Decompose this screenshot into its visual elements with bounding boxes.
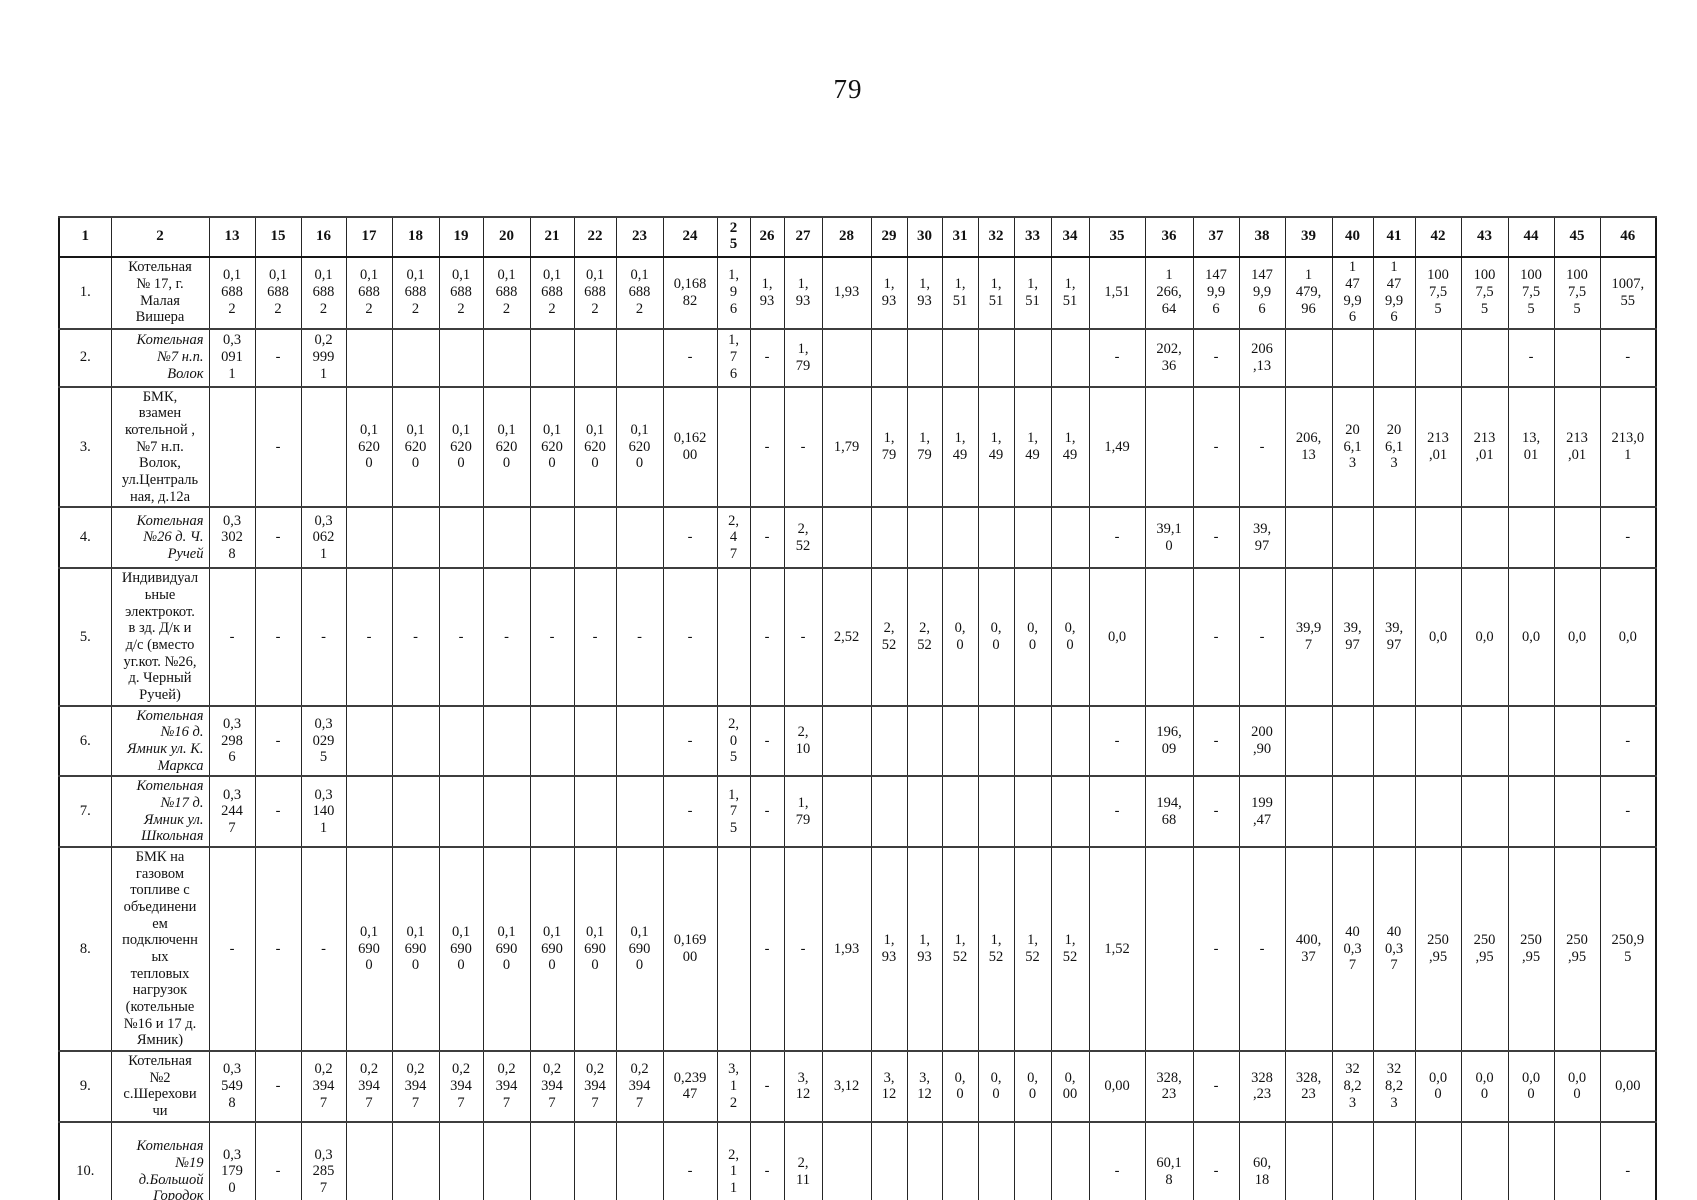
table-cell: - [750, 1122, 784, 1200]
table-cell: - [1193, 776, 1239, 847]
table-cell [942, 706, 978, 777]
row-number: 7. [59, 776, 111, 847]
table-cell: 0,00 [1089, 1051, 1145, 1122]
table-cell: - [784, 847, 822, 1051]
table-cell: 39, 97 [1373, 568, 1415, 705]
table-cell: 0,3 062 1 [301, 507, 346, 568]
table-cell: 250 ,95 [1461, 847, 1508, 1051]
table-cell: 0,2 394 7 [346, 1051, 392, 1122]
table-cell: 1, 52 [1014, 847, 1051, 1051]
table-cell: 13, 01 [1508, 387, 1554, 508]
table-cell: - [301, 847, 346, 1051]
table-cell: 0,2 394 7 [483, 1051, 530, 1122]
table-cell: 206, 13 [1285, 387, 1332, 508]
table-cell: 0,3 091 1 [209, 329, 255, 387]
table-cell: 0,1 688 2 [301, 257, 346, 329]
table-cell: 39,9 7 [1285, 568, 1332, 705]
table-cell [978, 329, 1014, 387]
table-cell: 1, 51 [1051, 257, 1089, 329]
table-cell [978, 706, 1014, 777]
column-header: 40 [1332, 217, 1373, 257]
table-cell: 2, 0 5 [717, 706, 750, 777]
table-cell: 250 ,95 [1415, 847, 1461, 1051]
column-header: 29 [871, 217, 907, 257]
table-cell: 0,2 394 7 [616, 1051, 663, 1122]
table-cell [392, 329, 439, 387]
table-cell: 3, 12 [907, 1051, 942, 1122]
table-cell: 1, 93 [907, 847, 942, 1051]
table-cell: - [1193, 847, 1239, 1051]
table-cell [1554, 329, 1600, 387]
table-cell: - [255, 329, 301, 387]
table-cell [616, 1122, 663, 1200]
table-cell: - [1600, 507, 1656, 568]
table-cell: - [255, 387, 301, 508]
table-cell: 1, 79 [784, 329, 822, 387]
boiler-name: Котельная №2 с.Шерехови чи [111, 1051, 209, 1122]
table-cell: - [1239, 568, 1285, 705]
table-cell [1461, 776, 1508, 847]
table-cell: 0,3 302 8 [209, 507, 255, 568]
table-cell: 3, 12 [784, 1051, 822, 1122]
table-cell: 1, 49 [1014, 387, 1051, 508]
table-cell [942, 507, 978, 568]
table-cell: 0,1 688 2 [392, 257, 439, 329]
table-cell: 20 6,1 3 [1332, 387, 1373, 508]
table-cell [1332, 706, 1373, 777]
table-cell [574, 706, 616, 777]
table-cell: 1,52 [1089, 847, 1145, 1051]
table-cell: 328 ,23 [1239, 1051, 1285, 1122]
table-cell: - [750, 387, 784, 508]
table-cell: 1 479, 96 [1285, 257, 1332, 329]
table-cell: 0,1 620 0 [530, 387, 574, 508]
boiler-name: БМК на газовом топливе с объединени ем п… [111, 847, 209, 1051]
boiler-name: Котельная №17 д. Ямник ул. Школьная [111, 776, 209, 847]
table-cell: 1, 79 [907, 387, 942, 508]
table-cell [1051, 1122, 1089, 1200]
table-cell [616, 507, 663, 568]
table-cell [483, 329, 530, 387]
table-cell: 0, 0 [1014, 1051, 1051, 1122]
table-cell: - [255, 706, 301, 777]
table-cell: 0,0 [1461, 568, 1508, 705]
table-row: 6.Котельная №16 д. Ямник ул. К. Маркса0,… [59, 706, 1656, 777]
table-cell: 0,3 179 0 [209, 1122, 255, 1200]
table-cell: 0,1 688 2 [346, 257, 392, 329]
table-cell [530, 776, 574, 847]
table-cell: 213 ,01 [1415, 387, 1461, 508]
table-cell: 60, 18 [1239, 1122, 1285, 1200]
table-cell [346, 329, 392, 387]
table-cell: 0, 0 [942, 568, 978, 705]
table-cell: - [1600, 329, 1656, 387]
table-cell [392, 507, 439, 568]
table-cell [1373, 776, 1415, 847]
table-cell [871, 776, 907, 847]
table-cell: - [784, 387, 822, 508]
table-cell: 0,0 0 [1415, 1051, 1461, 1122]
table-cell [907, 1122, 942, 1200]
table-cell: 100 7,5 5 [1461, 257, 1508, 329]
table-cell [1332, 507, 1373, 568]
table-cell: 0, 0 [942, 1051, 978, 1122]
table-cell: 2, 10 [784, 706, 822, 777]
column-header: 1 [59, 217, 111, 257]
table-cell: 0,1 688 2 [574, 257, 616, 329]
table-cell [346, 706, 392, 777]
table-cell [942, 329, 978, 387]
table-cell: 0,3 244 7 [209, 776, 255, 847]
table-cell [616, 329, 663, 387]
column-header: 20 [483, 217, 530, 257]
table-cell: 2, 11 [784, 1122, 822, 1200]
table-cell: 0,1 690 0 [346, 847, 392, 1051]
table-cell [717, 847, 750, 1051]
table-cell: - [1089, 706, 1145, 777]
table-cell: 1, 49 [942, 387, 978, 508]
table-cell: 1, 7 6 [717, 329, 750, 387]
table-cell [346, 507, 392, 568]
table-cell: 0, 0 [1051, 568, 1089, 705]
table-cell [439, 507, 483, 568]
table-cell [1554, 776, 1600, 847]
table-cell: 40 0,3 7 [1373, 847, 1415, 1051]
table-cell: 0,1 690 0 [392, 847, 439, 1051]
table-cell: 2, 52 [871, 568, 907, 705]
table-cell: - [784, 568, 822, 705]
table-cell: 1007, 55 [1600, 257, 1656, 329]
table-cell: 0,2 999 1 [301, 329, 346, 387]
table-cell: - [663, 706, 717, 777]
table-cell [1461, 507, 1508, 568]
table-cell: 0,168 82 [663, 257, 717, 329]
table-cell: - [750, 847, 784, 1051]
column-header: 42 [1415, 217, 1461, 257]
table-cell [209, 387, 255, 508]
table-cell: 147 9,9 6 [1239, 257, 1285, 329]
column-header: 28 [822, 217, 871, 257]
table-cell: 0,2 394 7 [574, 1051, 616, 1122]
table-cell [483, 1122, 530, 1200]
table-cell [907, 706, 942, 777]
table-cell [1373, 706, 1415, 777]
boiler-name: Котельная №19 д.Большой Городок [111, 1122, 209, 1200]
page-number: 79 [788, 74, 908, 105]
column-header: 35 [1089, 217, 1145, 257]
table-cell: - [750, 776, 784, 847]
table-cell: - [1600, 1122, 1656, 1200]
table-cell: - [1193, 1122, 1239, 1200]
table-cell: 39, 97 [1332, 568, 1373, 705]
table-cell: 0,1 620 0 [439, 387, 483, 508]
table-cell [483, 706, 530, 777]
table-cell [1461, 329, 1508, 387]
table-cell: 0,0 [1508, 568, 1554, 705]
table-cell [822, 1122, 871, 1200]
table-cell [1508, 1122, 1554, 1200]
table-cell: 1, 9 6 [717, 257, 750, 329]
table-cell: 0,2 394 7 [301, 1051, 346, 1122]
table-cell [1014, 329, 1051, 387]
column-header: 13 [209, 217, 255, 257]
column-header: 45 [1554, 217, 1600, 257]
row-number: 4. [59, 507, 111, 568]
row-number: 8. [59, 847, 111, 1051]
table-cell: 0,162 00 [663, 387, 717, 508]
table-cell: - [1193, 568, 1239, 705]
table-cell [301, 387, 346, 508]
table-cell: 20 6,1 3 [1373, 387, 1415, 508]
table-cell: - [1089, 1122, 1145, 1200]
table-cell: - [663, 329, 717, 387]
table-cell [616, 776, 663, 847]
column-header: 2 [111, 217, 209, 257]
table-cell [1285, 1122, 1332, 1200]
table-cell: 0,1 620 0 [483, 387, 530, 508]
table-cell: 0,3 140 1 [301, 776, 346, 847]
boiler-name: Котельная №7 н.п. Волок [111, 329, 209, 387]
table-cell [907, 776, 942, 847]
table-cell: - [616, 568, 663, 705]
table-cell [439, 1122, 483, 1200]
table-cell: 1,51 [1089, 257, 1145, 329]
column-header: 24 [663, 217, 717, 257]
table-cell: - [663, 568, 717, 705]
table-cell: 39,1 0 [1145, 507, 1193, 568]
table-cell [907, 507, 942, 568]
table-cell: 213 ,01 [1461, 387, 1508, 508]
table-cell [1285, 329, 1332, 387]
table-cell [942, 1122, 978, 1200]
table-cell: 0,1 690 0 [574, 847, 616, 1051]
row-number: 3. [59, 387, 111, 508]
table-cell [346, 776, 392, 847]
table-cell: 1,93 [822, 847, 871, 1051]
table-cell [978, 776, 1014, 847]
table-cell: - [750, 329, 784, 387]
table-cell: - [750, 507, 784, 568]
table-cell: 213,0 1 [1600, 387, 1656, 508]
table-cell [871, 1122, 907, 1200]
table-cell: 0,1 688 2 [616, 257, 663, 329]
table-cell: - [1193, 507, 1239, 568]
table-cell: - [663, 776, 717, 847]
column-header: 22 [574, 217, 616, 257]
table-cell [439, 706, 483, 777]
table-cell: - [209, 568, 255, 705]
table-cell [574, 776, 616, 847]
table-cell: - [1508, 329, 1554, 387]
column-header: 18 [392, 217, 439, 257]
row-number: 2. [59, 329, 111, 387]
table-cell: 1, 52 [1051, 847, 1089, 1051]
table-cell [717, 387, 750, 508]
table-cell [1415, 507, 1461, 568]
table-cell: 60,1 8 [1145, 1122, 1193, 1200]
table-cell: 200 ,90 [1239, 706, 1285, 777]
boiler-name: Котельная №16 д. Ямник ул. К. Маркса [111, 706, 209, 777]
table-cell [616, 706, 663, 777]
table-cell: 1, 93 [871, 847, 907, 1051]
column-header: 15 [255, 217, 301, 257]
table-cell: 0,1 688 2 [530, 257, 574, 329]
table-cell [346, 1122, 392, 1200]
table-cell: 0,1 690 0 [483, 847, 530, 1051]
table-cell: 1, 52 [978, 847, 1014, 1051]
table-cell: - [1193, 1051, 1239, 1122]
table-cell [871, 507, 907, 568]
table-cell [1051, 706, 1089, 777]
table-cell [1051, 507, 1089, 568]
boiler-name: БМК, взамен котельной , №7 н.п. Волок, у… [111, 387, 209, 508]
table-cell [1554, 706, 1600, 777]
table-cell: 0,1 688 2 [439, 257, 483, 329]
table-cell [392, 776, 439, 847]
table-cell: - [574, 568, 616, 705]
table-cell: 2,52 [822, 568, 871, 705]
boiler-name: Котельная № 17, г. Малая Вишера [111, 257, 209, 329]
table-cell: - [255, 1051, 301, 1122]
table-cell: 0, 0 [978, 1051, 1014, 1122]
table-cell: 196, 09 [1145, 706, 1193, 777]
table-cell [1014, 507, 1051, 568]
table-cell: - [1600, 776, 1656, 847]
table-cell: 0, 0 [1014, 568, 1051, 705]
table-cell: 0,1 690 0 [616, 847, 663, 1051]
table-cell [439, 329, 483, 387]
table-row: 9.Котельная №2 с.Шерехови чи0,3 549 8-0,… [59, 1051, 1656, 1122]
table-cell: - [346, 568, 392, 705]
table-cell [1145, 387, 1193, 508]
table-cell [978, 507, 1014, 568]
table-cell: 1, 49 [1051, 387, 1089, 508]
table-cell: - [439, 568, 483, 705]
table-cell: - [1600, 706, 1656, 777]
table-cell: 40 0,3 7 [1332, 847, 1373, 1051]
table-cell: 0,1 690 0 [530, 847, 574, 1051]
table-cell: - [483, 568, 530, 705]
table-row: 3.БМК, взамен котельной , №7 н.п. Волок,… [59, 387, 1656, 508]
table-cell: 400, 37 [1285, 847, 1332, 1051]
table-cell: 100 7,5 5 [1508, 257, 1554, 329]
table-cell [574, 1122, 616, 1200]
table-cell: 0,0 [1089, 568, 1145, 705]
table-cell: 1,93 [822, 257, 871, 329]
row-number: 6. [59, 706, 111, 777]
table-cell [1285, 507, 1332, 568]
table-row: 5.Индивидуал ьные электрокот. в зд. Д/к … [59, 568, 1656, 705]
table-cell: 0,3 285 7 [301, 1122, 346, 1200]
table-cell: 1, 52 [942, 847, 978, 1051]
table-cell: 0,00 [1600, 1051, 1656, 1122]
table-cell: 0,0 0 [1554, 1051, 1600, 1122]
table-cell [942, 776, 978, 847]
table-cell: 199 ,47 [1239, 776, 1285, 847]
table-cell [392, 1122, 439, 1200]
table-cell [1014, 1122, 1051, 1200]
table-cell: 32 8,2 3 [1373, 1051, 1415, 1122]
table-cell: 0,1 690 0 [439, 847, 483, 1051]
table-cell [530, 329, 574, 387]
table-cell: - [1239, 847, 1285, 1051]
table-body: 1.Котельная № 17, г. Малая Вишера0,1 688… [59, 257, 1656, 1200]
column-header: 37 [1193, 217, 1239, 257]
table-cell: 2, 52 [784, 507, 822, 568]
table-cell: 1, 93 [907, 257, 942, 329]
table-cell: 1, 93 [871, 257, 907, 329]
table-row: 1.Котельная № 17, г. Малая Вишера0,1 688… [59, 257, 1656, 329]
table-cell: - [750, 706, 784, 777]
table-cell [530, 706, 574, 777]
table-cell: 2, 1 1 [717, 1122, 750, 1200]
table-cell [439, 776, 483, 847]
column-header: 38 [1239, 217, 1285, 257]
table-cell: 3, 1 2 [717, 1051, 750, 1122]
table-cell [1415, 706, 1461, 777]
table-cell: 0,1 688 2 [209, 257, 255, 329]
table-cell [1508, 706, 1554, 777]
table-cell [1554, 507, 1600, 568]
column-header: 32 [978, 217, 1014, 257]
table-row: 10.Котельная №19 д.Большой Городок0,3 17… [59, 1122, 1656, 1200]
table-cell: 250 ,95 [1508, 847, 1554, 1051]
row-number: 1. [59, 257, 111, 329]
table-cell: 1 266, 64 [1145, 257, 1193, 329]
table-cell: 147 9,9 6 [1193, 257, 1239, 329]
table-cell: - [1193, 387, 1239, 508]
table-cell [1415, 329, 1461, 387]
table-cell [1285, 706, 1332, 777]
table-cell: - [1089, 507, 1145, 568]
table-cell [1554, 1122, 1600, 1200]
table-cell: - [255, 847, 301, 1051]
table-cell: 250,9 5 [1600, 847, 1656, 1051]
table-cell [1285, 776, 1332, 847]
table-cell: - [1239, 387, 1285, 508]
column-header: 43 [1461, 217, 1508, 257]
table-cell: - [1089, 776, 1145, 847]
table-cell: 0,0 [1415, 568, 1461, 705]
column-header: 17 [346, 217, 392, 257]
table-cell: 1, 51 [942, 257, 978, 329]
table-cell [1014, 706, 1051, 777]
table-cell: - [209, 847, 255, 1051]
table-cell [1373, 507, 1415, 568]
table-cell: 3, 12 [871, 1051, 907, 1122]
table-cell: 0, 00 [1051, 1051, 1089, 1122]
column-header: 46 [1600, 217, 1656, 257]
table-cell: 1, 79 [784, 776, 822, 847]
table-cell [574, 507, 616, 568]
table-cell: - [1193, 329, 1239, 387]
table-cell [1145, 847, 1193, 1051]
table-cell [1415, 776, 1461, 847]
table-cell: - [255, 568, 301, 705]
table-cell: 1, 7 5 [717, 776, 750, 847]
table-cell: 3,12 [822, 1051, 871, 1122]
column-header: 36 [1145, 217, 1193, 257]
table-cell: - [255, 776, 301, 847]
table-cell [822, 329, 871, 387]
table-cell: 39, 97 [1239, 507, 1285, 568]
column-header: 41 [1373, 217, 1415, 257]
table-row: 7.Котельная №17 д. Ямник ул. Школьная0,3… [59, 776, 1656, 847]
table-cell: 0, 0 [978, 568, 1014, 705]
table-cell: 0,0 [1600, 568, 1656, 705]
table-cell: - [663, 1122, 717, 1200]
table-cell: 0,0 0 [1461, 1051, 1508, 1122]
